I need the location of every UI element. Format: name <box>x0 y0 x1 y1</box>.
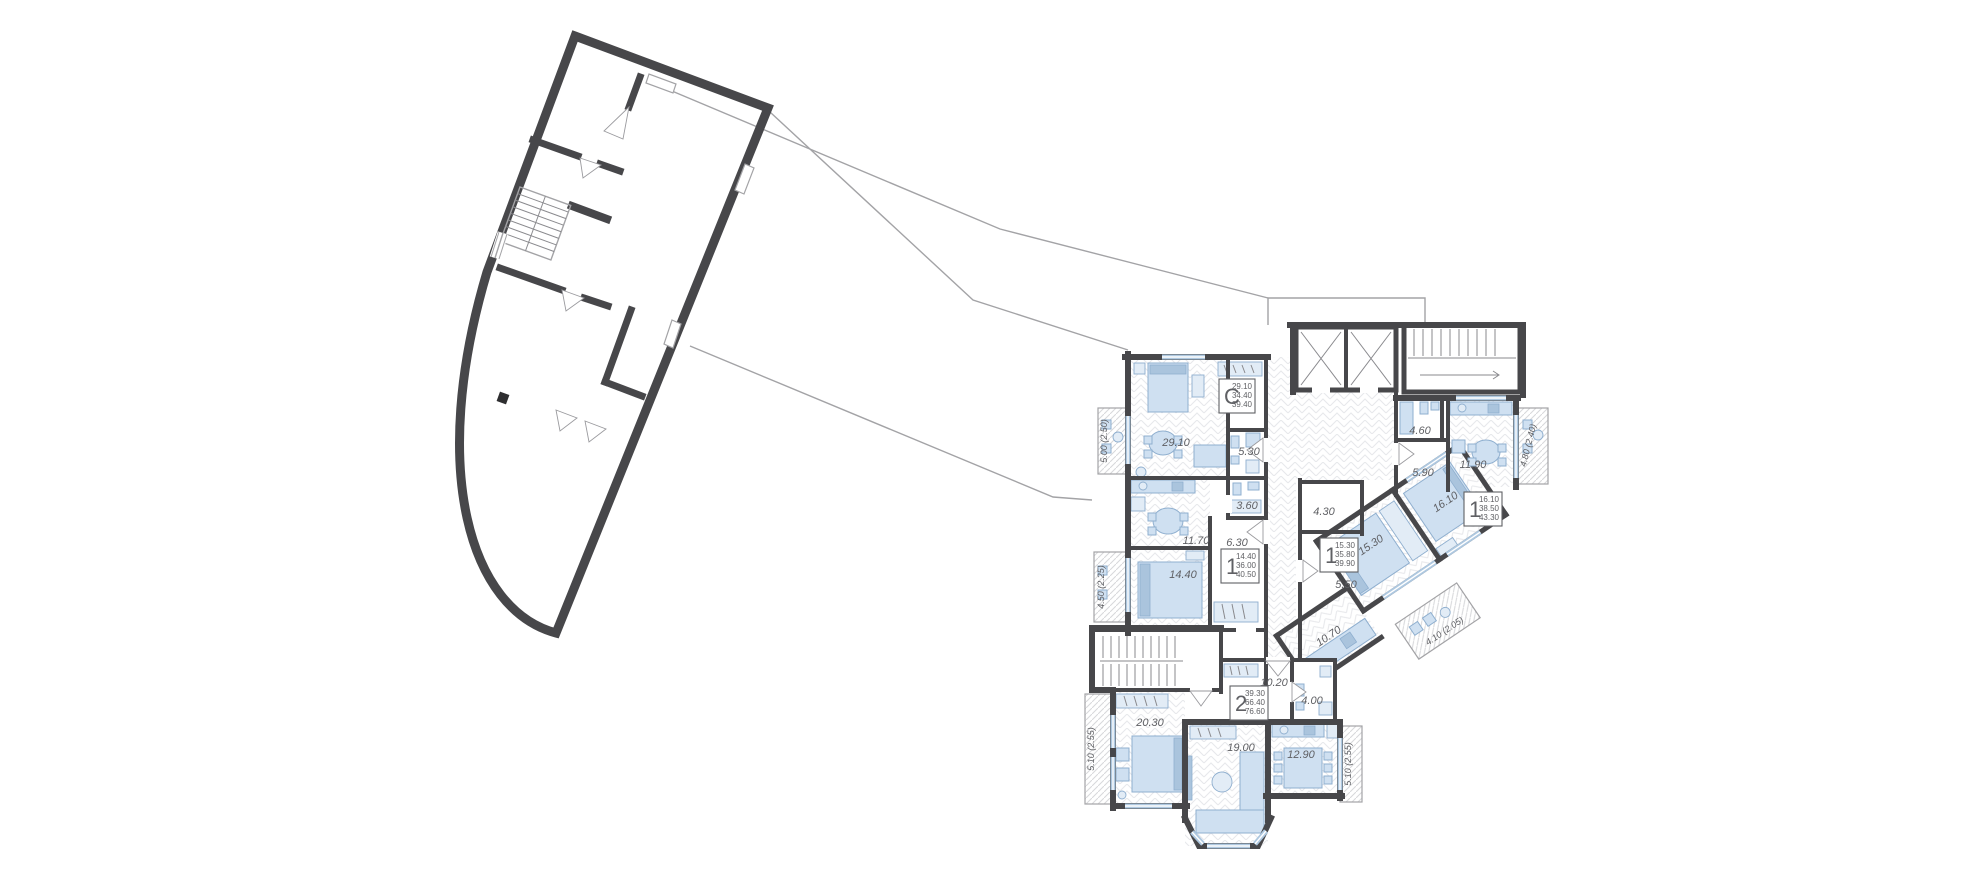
room-label-b1-hall: 5.50 <box>1335 579 1357 591</box>
balcony-label-a2-left: 5.10 (2.55) <box>1086 727 1096 771</box>
room-label-studio-living: 29.10 <box>1161 437 1190 449</box>
detailed-floor-plan: 15.30 16.10 10.70 4.10 (2.05) <box>1085 325 1548 846</box>
stairwell <box>1404 325 1520 392</box>
room-label-a2-kitchen: 12.90 <box>1287 749 1315 761</box>
room-label-a2-bath: 4.00 <box>1301 695 1323 707</box>
apartment-area: 35.80 <box>1335 550 1356 559</box>
column <box>497 392 510 405</box>
room-label-c1-hall: 5.90 <box>1412 467 1434 479</box>
door-swings <box>556 107 629 442</box>
apartment-area: 39.30 <box>1245 689 1266 698</box>
apartment-box-1c: 1 16.10 38.50 43.30 <box>1464 492 1502 526</box>
room-label-c1-kitchen: 11.90 <box>1460 459 1488 471</box>
balcony-label-studio: 5.00 (2.50) <box>1099 419 1109 463</box>
window-tab-icon <box>646 74 676 93</box>
room-label-a2-bedroom: 20.30 <box>1135 717 1164 729</box>
elevator-core <box>1296 327 1396 393</box>
apartment-area: 39.90 <box>1335 559 1356 568</box>
room-label-b1-bath: 4.30 <box>1313 506 1335 518</box>
apartment-box-1a: 1 14.40 36.00 40.50 <box>1221 549 1259 583</box>
room-label-c1-bath: 4.60 <box>1409 425 1431 437</box>
apartment-area: 15.30 <box>1335 541 1356 550</box>
apartment-area: 14.40 <box>1236 552 1257 561</box>
balcony-label-a2-right: 5.10 (2.55) <box>1343 742 1353 786</box>
freestanding-wall <box>572 206 607 219</box>
apartment-area: 39.40 <box>1232 400 1253 409</box>
apartment-area: 40.50 <box>1236 570 1257 579</box>
apartment-area: 38.50 <box>1479 504 1500 513</box>
apartment-area: 66.40 <box>1245 698 1266 707</box>
floor-plan-canvas: 15.30 16.10 10.70 4.10 (2.05) <box>0 0 1980 886</box>
room-label-a1-bedroom: 14.40 <box>1169 569 1197 581</box>
room-label-studio-bath: 5.30 <box>1238 446 1260 458</box>
apartment-area: 29.10 <box>1232 382 1253 391</box>
room-label-a1-bath: 3.60 <box>1236 500 1258 512</box>
room-label-a1-kitchen: 11.70 <box>1183 535 1211 547</box>
balcony-label-a1: 4.50 (2.25) <box>1096 565 1106 609</box>
apartment-area: 43.30 <box>1479 513 1500 522</box>
left-building-section <box>460 36 768 633</box>
floor-plan-page: 15.30 16.10 10.70 4.10 (2.05) <box>0 0 1980 886</box>
apartment-area: 34.40 <box>1232 391 1253 400</box>
room-label-a2-living: 19.00 <box>1227 742 1255 754</box>
apartment-box-1b: 1 15.30 35.80 39.90 <box>1320 538 1358 572</box>
room-label-a1-hall: 6.30 <box>1226 537 1248 549</box>
apartment-area: 16.10 <box>1479 495 1500 504</box>
apartment-box-studio: C 29.10 34.40 39.40 <box>1219 379 1255 413</box>
window-icon <box>491 232 507 259</box>
apartment-box-2: 2 39.30 66.40 76.60 <box>1230 686 1268 720</box>
apartment-area: 36.00 <box>1236 561 1257 570</box>
apartment-area: 76.60 <box>1245 707 1266 716</box>
